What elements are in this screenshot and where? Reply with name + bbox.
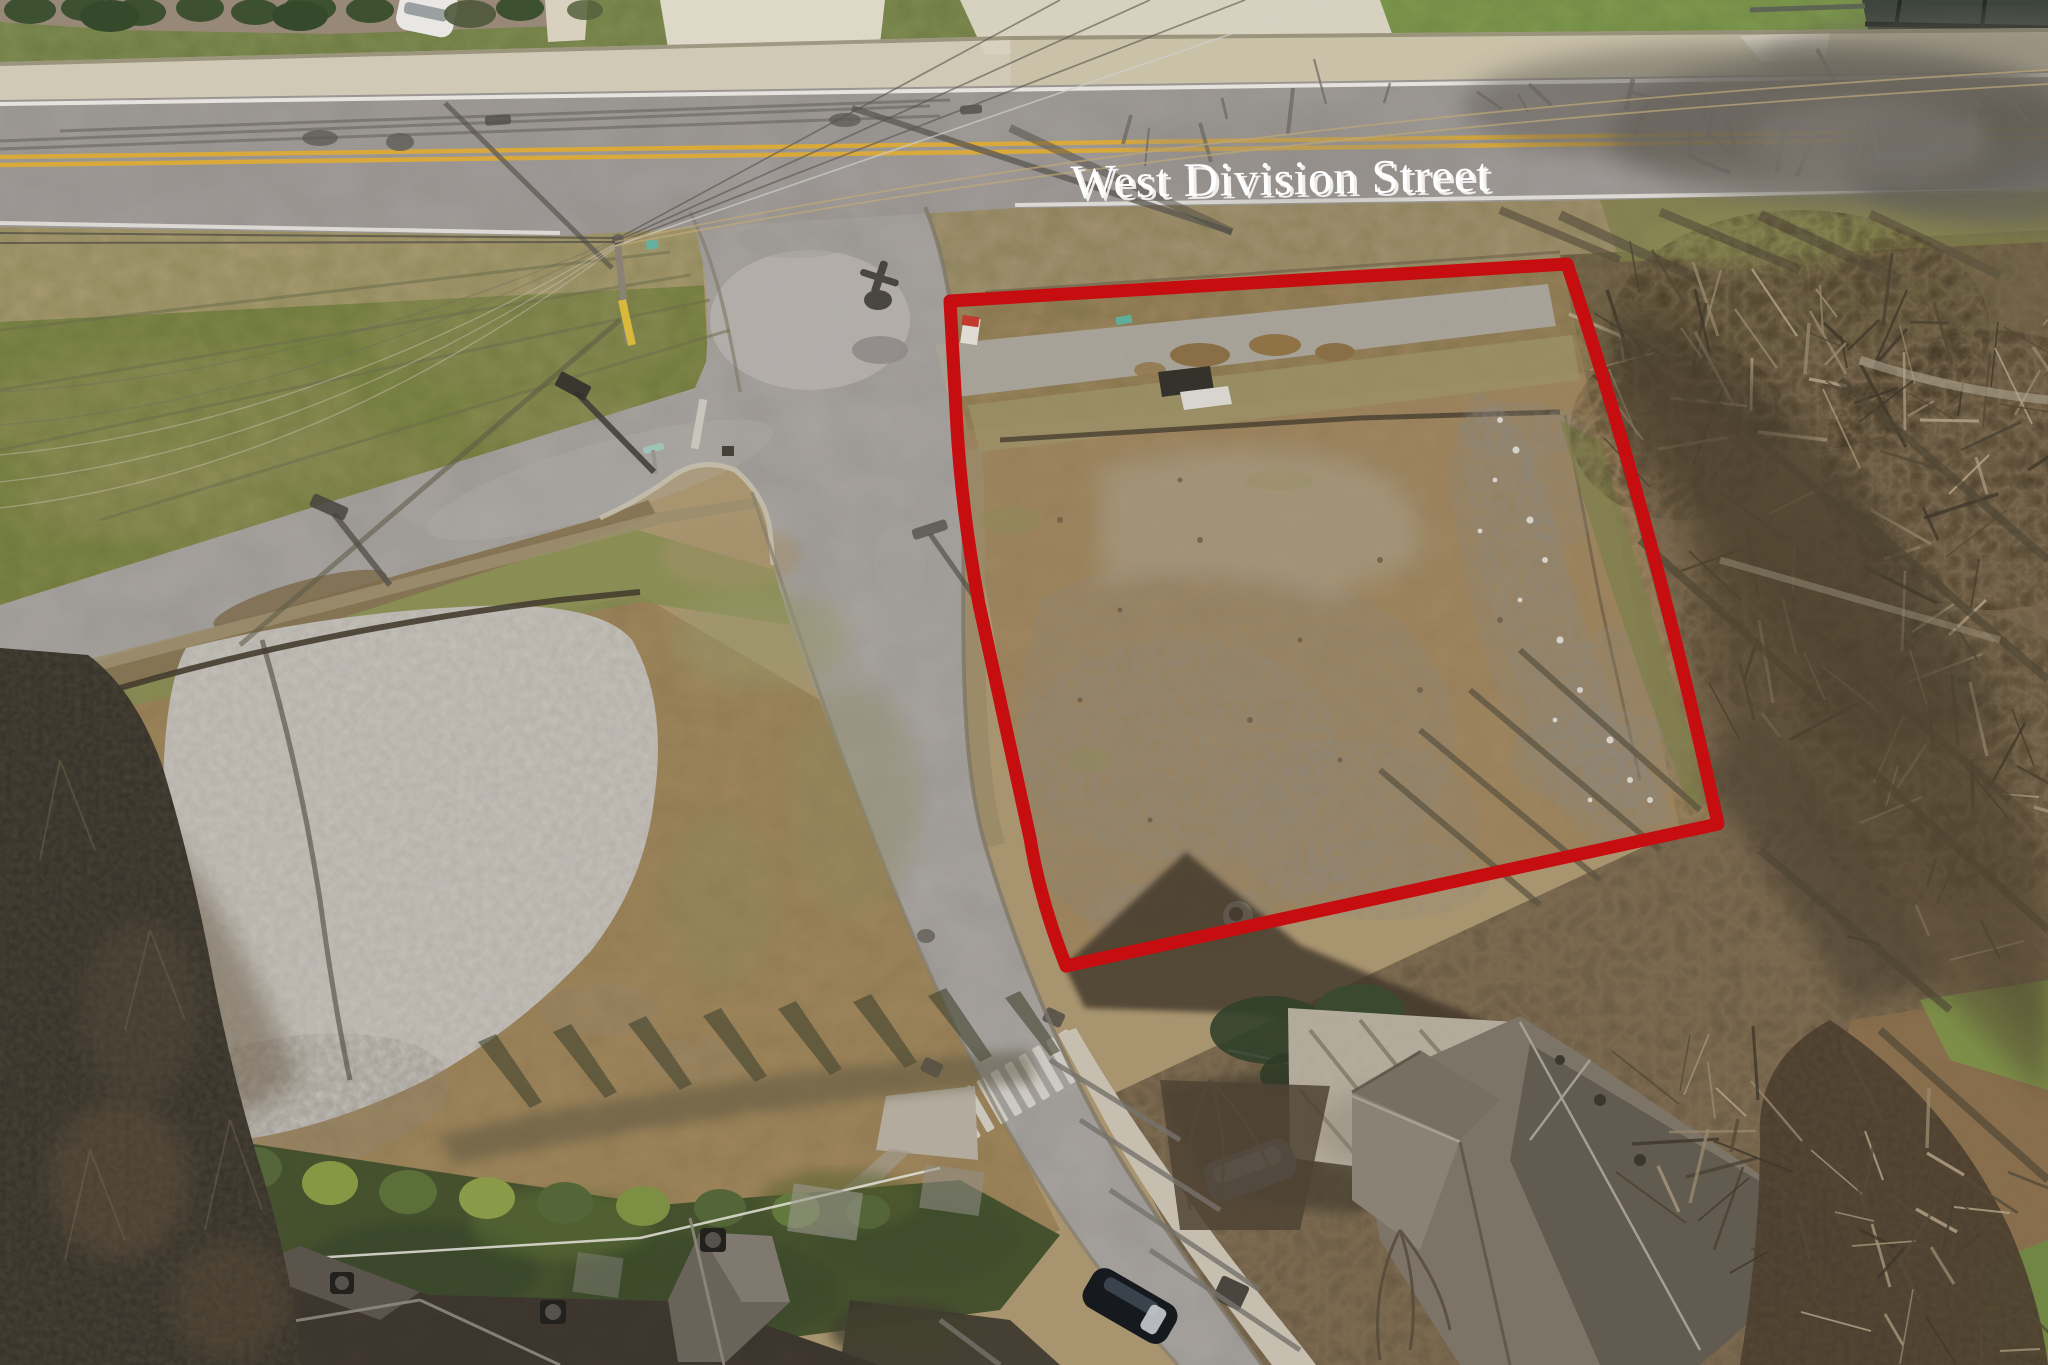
svg-text:West Division Street: West Division Street — [1070, 149, 1491, 209]
